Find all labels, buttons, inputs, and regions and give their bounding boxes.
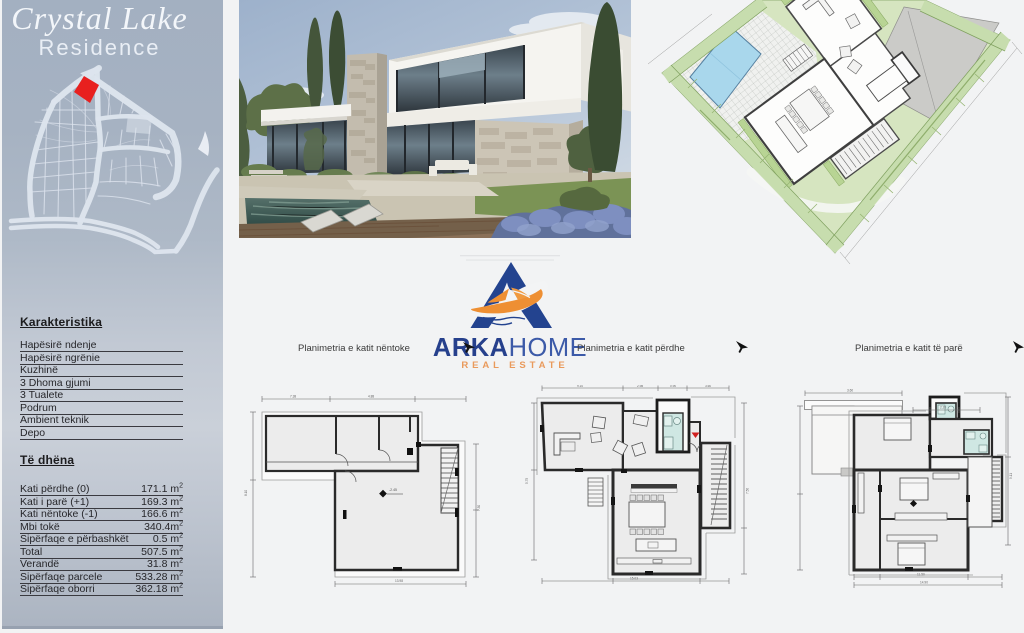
- svg-text:15.03: 15.03: [630, 577, 638, 581]
- svg-text:13.98: 13.98: [395, 579, 403, 583]
- svg-text:7.38: 7.38: [290, 395, 296, 399]
- svg-text:-2.45: -2.45: [389, 488, 397, 492]
- svg-text:5.75: 5.75: [525, 478, 529, 484]
- svg-text:4.88: 4.88: [368, 395, 374, 399]
- svg-text:0.90: 0.90: [670, 385, 676, 388]
- svg-text:8.10: 8.10: [244, 490, 248, 496]
- svg-text:9.10: 9.10: [577, 385, 583, 388]
- svg-text:3.60: 3.60: [847, 389, 853, 393]
- svg-text:9.11: 9.11: [1009, 473, 1013, 479]
- svg-text:14.90: 14.90: [920, 581, 928, 585]
- svg-text:2.98: 2.98: [637, 385, 643, 388]
- svg-text:3.60: 3.60: [705, 385, 711, 388]
- svg-text:8.70: 8.70: [795, 483, 796, 489]
- svg-text:7.30: 7.30: [477, 505, 481, 511]
- svg-text:11.50: 11.50: [917, 573, 925, 577]
- svg-text:7.50: 7.50: [746, 488, 750, 494]
- svg-text:2.20: 2.20: [940, 406, 946, 410]
